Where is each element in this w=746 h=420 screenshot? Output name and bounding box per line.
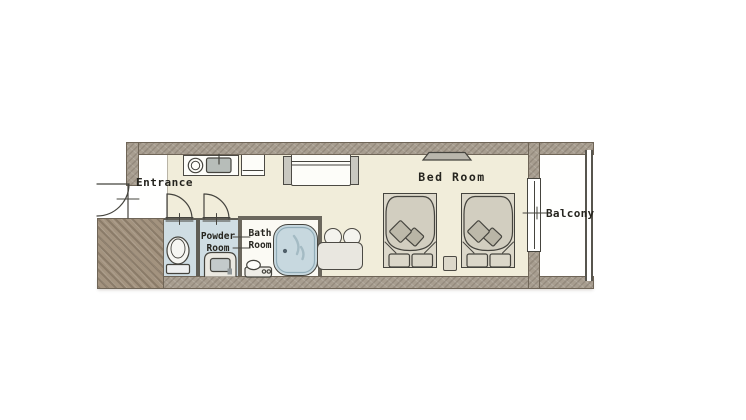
bath-room-label-line2: Room	[244, 240, 276, 252]
wall-mass-lower-left	[98, 219, 163, 288]
toilet-room	[157, 218, 198, 278]
kitchen-counter	[183, 155, 239, 176]
bath-room-label-line1: Bath	[244, 228, 276, 240]
powder-room-label-line1: Powder	[197, 231, 239, 243]
bathtub	[273, 224, 318, 276]
sofa-seat	[291, 152, 351, 186]
table	[317, 242, 363, 270]
bed-room-label: Bed Room	[410, 170, 494, 184]
powder-room-label: Powder Room	[197, 231, 239, 254]
balcony-label: Balcony	[546, 207, 594, 220]
bed-right	[461, 193, 515, 268]
wall-top	[127, 143, 593, 154]
bed-left	[383, 193, 437, 268]
wall-bottom	[98, 277, 593, 288]
refrigerator	[241, 154, 265, 176]
balcony-window	[527, 178, 541, 252]
sofa-arm-right	[350, 156, 359, 185]
entrance-label: Entrance	[136, 176, 193, 189]
powder-room-label-line2: Room	[197, 243, 239, 255]
floor-plan: Entrance Powder Room Bath Room Bed Room …	[0, 0, 746, 420]
nightstand	[443, 256, 457, 271]
window-glass-line	[534, 181, 535, 249]
bath-room-label: Bath Room	[244, 228, 276, 251]
entrance-door	[97, 184, 139, 218]
